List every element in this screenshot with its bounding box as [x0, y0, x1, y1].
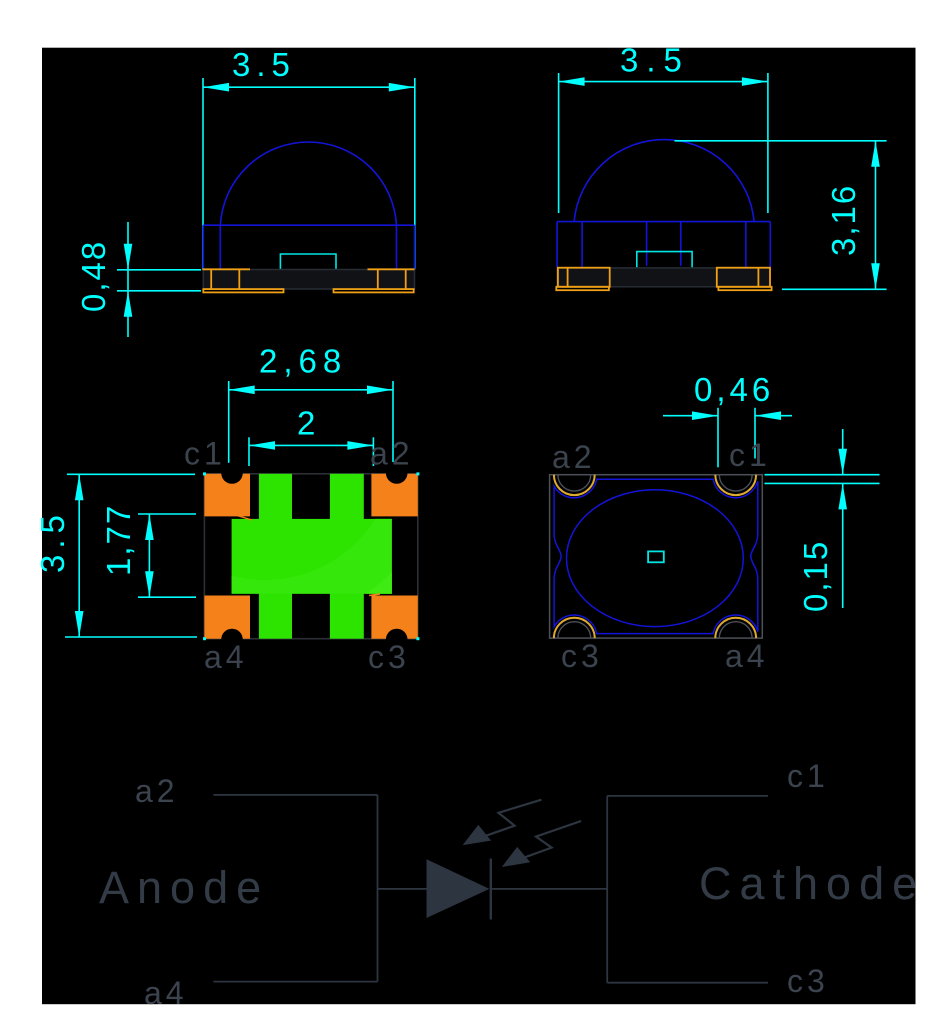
svg-text:0,48: 0,48: [75, 240, 112, 312]
svg-text:c1: c1: [729, 437, 771, 473]
svg-text:3.5: 3.5: [232, 46, 296, 83]
svg-text:c1: c1: [787, 758, 829, 794]
svg-text:1,77: 1,77: [100, 504, 137, 576]
svg-text:a2: a2: [370, 436, 414, 472]
svg-text:2,68: 2,68: [259, 343, 347, 380]
svg-text:a4: a4: [204, 639, 248, 675]
svg-text:3.5: 3.5: [620, 42, 690, 79]
svg-text:c3: c3: [368, 639, 410, 675]
svg-text:3.5: 3.5: [34, 509, 71, 573]
svg-text:a4: a4: [725, 638, 769, 674]
svg-text:a4: a4: [144, 975, 188, 1009]
svg-text:2: 2: [297, 405, 315, 442]
svg-text:a2: a2: [135, 773, 179, 809]
svg-text:Cathode: Cathode: [699, 858, 925, 909]
svg-text:3,16: 3,16: [825, 184, 862, 256]
svg-text:a2: a2: [552, 439, 596, 475]
svg-text:0,15: 0,15: [797, 540, 834, 612]
svg-text:0,46: 0,46: [694, 371, 774, 408]
svg-text:c3: c3: [561, 638, 603, 674]
svg-text:c1: c1: [184, 436, 226, 472]
svg-text:c3: c3: [787, 963, 829, 999]
svg-text:Anode: Anode: [99, 862, 269, 913]
